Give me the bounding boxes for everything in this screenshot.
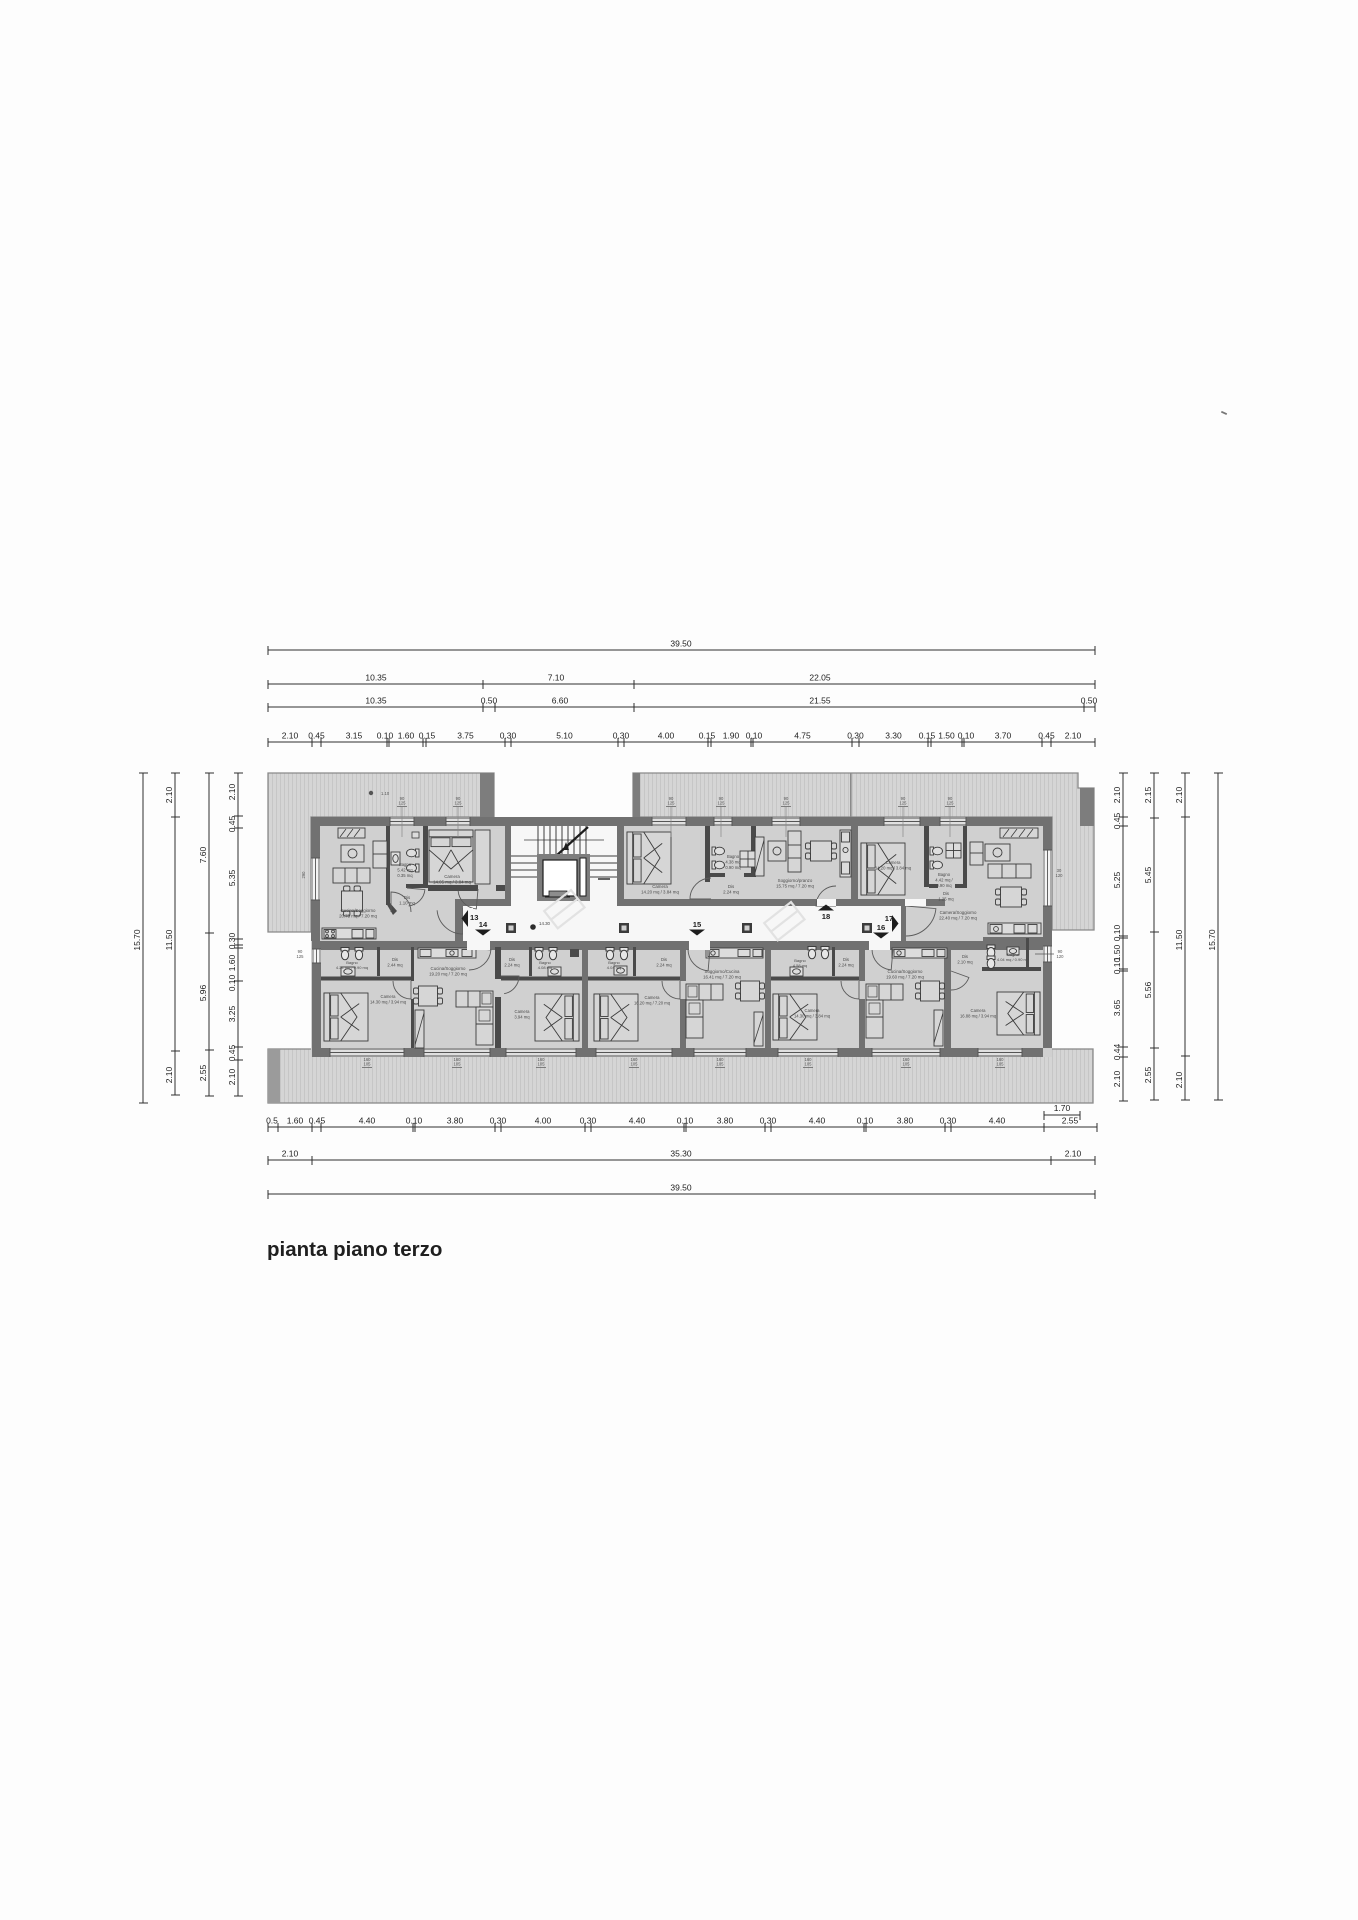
svg-text:0.30: 0.30 [760, 1116, 777, 1126]
svg-text:2.10: 2.10 [282, 1149, 299, 1159]
svg-text:2.15: 2.15 [1143, 786, 1153, 803]
svg-text:39.50: 39.50 [670, 639, 692, 649]
svg-text:0.10: 0.10 [958, 731, 975, 741]
svg-text:4.42 mq /: 4.42 mq / [935, 877, 953, 882]
svg-text:Dis: Dis [962, 954, 968, 959]
svg-text:15.75 mq / 7.20 mq: 15.75 mq / 7.20 mq [776, 884, 814, 889]
svg-text:16.88 mq / 3.94 mq: 16.88 mq / 3.94 mq [960, 1013, 997, 1018]
svg-text:125: 125 [668, 801, 676, 806]
svg-text:4.00: 4.00 [535, 1116, 552, 1126]
svg-text:4.40: 4.40 [989, 1116, 1006, 1126]
svg-text:1.60: 1.60 [398, 731, 415, 741]
svg-text:2.55: 2.55 [1062, 1116, 1079, 1126]
svg-text:105: 105 [717, 1062, 725, 1067]
svg-text:16.41 mq / 7.20 mq: 16.41 mq / 7.20 mq [703, 975, 741, 980]
svg-text:125: 125 [783, 801, 791, 806]
svg-text:3.70: 3.70 [995, 731, 1012, 741]
svg-text:2.10: 2.10 [227, 783, 237, 800]
svg-text:Cucina/Soggiorno: Cucina/Soggiorno [341, 908, 376, 913]
svg-text:35.30: 35.30 [670, 1149, 692, 1159]
svg-text:0.30: 0.30 [580, 1116, 597, 1126]
svg-text:4.04 mq: 4.04 mq [607, 965, 621, 970]
svg-text:1.90: 1.90 [723, 731, 740, 741]
svg-text:11.50: 11.50 [1174, 929, 1184, 950]
svg-text:Camera/Soggiorno: Camera/Soggiorno [940, 910, 977, 915]
svg-text:2.24 mq: 2.24 mq [504, 962, 520, 967]
svg-text:5.45: 5.45 [1143, 866, 1153, 883]
svg-text:Bagno: Bagno [938, 872, 951, 877]
svg-text:0.45: 0.45 [227, 1044, 237, 1061]
svg-text:1.25 mq: 1.25 mq [938, 896, 954, 901]
svg-text:2.10: 2.10 [1112, 786, 1122, 803]
svg-text:2.10: 2.10 [1174, 1071, 1184, 1088]
svg-text:10.35: 10.35 [365, 696, 387, 706]
svg-text:0.30: 0.30 [940, 1116, 957, 1126]
svg-text:0.45: 0.45 [309, 1116, 326, 1126]
svg-text:0.30: 0.30 [490, 1116, 507, 1126]
svg-text:Camera: Camera [971, 1008, 987, 1013]
svg-text:2.10: 2.10 [1112, 1070, 1122, 1087]
svg-text:14.20 mq / 3.84 mq: 14.20 mq / 3.84 mq [875, 865, 912, 870]
svg-text:125: 125 [455, 801, 463, 806]
svg-text:0.10: 0.10 [677, 1116, 694, 1126]
svg-text:0.10: 0.10 [746, 731, 763, 741]
svg-text:16.20 mq / 7.20 mq: 16.20 mq / 7.20 mq [634, 1000, 671, 1005]
svg-text:0.30: 0.30 [227, 932, 237, 949]
svg-text:18: 18 [822, 912, 830, 921]
svg-text:Camera: Camera [444, 874, 460, 879]
svg-text:290: 290 [301, 871, 306, 879]
svg-text:0.30: 0.30 [847, 731, 864, 741]
svg-text:14: 14 [479, 920, 488, 929]
svg-text:2.55: 2.55 [1143, 1066, 1153, 1083]
svg-text:15.70: 15.70 [1207, 929, 1217, 951]
svg-text:0.15: 0.15 [699, 731, 716, 741]
svg-text:14.05 mq / 3.84 mq: 14.05 mq / 3.84 mq [433, 880, 471, 885]
svg-text:7.60: 7.60 [198, 846, 208, 863]
svg-text:3.75: 3.75 [457, 731, 474, 741]
svg-text:15.70: 15.70 [132, 929, 142, 951]
svg-text:0.35 mq: 0.35 mq [397, 873, 413, 878]
svg-text:3.30: 3.30 [885, 731, 902, 741]
svg-text:0.10: 0.10 [857, 1116, 874, 1126]
svg-text:5.56: 5.56 [1143, 981, 1153, 998]
svg-text:5.35: 5.35 [227, 869, 237, 886]
svg-text:22.05: 22.05 [809, 673, 831, 683]
svg-text:105: 105 [631, 1062, 639, 1067]
svg-text:Dis: Dis [509, 957, 515, 962]
svg-text:6.60: 6.60 [552, 696, 569, 706]
svg-text:120: 120 [1057, 954, 1065, 959]
svg-text:125: 125 [900, 801, 908, 806]
svg-text:pianta piano terzo: pianta piano terzo [267, 1238, 442, 1261]
svg-text:5.42 mq: 5.42 mq [397, 867, 413, 872]
svg-text:0.90 mq: 0.90 mq [936, 883, 952, 888]
svg-text:3.25: 3.25 [227, 1005, 237, 1022]
svg-text:1.60: 1.60 [287, 1116, 304, 1126]
svg-text:Bagno: Bagno [727, 854, 740, 859]
svg-text:0.10: 0.10 [377, 731, 394, 741]
svg-text:0.15: 0.15 [919, 731, 936, 741]
svg-text:Bagno: Bagno [399, 862, 412, 867]
svg-text:4.40: 4.40 [359, 1116, 376, 1126]
svg-text:0.5: 0.5 [266, 1116, 278, 1126]
svg-text:3.15: 3.15 [346, 731, 363, 741]
svg-text:2.24 mq: 2.24 mq [656, 962, 672, 967]
svg-text:14.30 mq / 3.94 mq: 14.30 mq / 3.94 mq [370, 999, 407, 1004]
svg-text:Cucina/Soggiorno: Cucina/Soggiorno [888, 969, 923, 974]
svg-text:4.75: 4.75 [794, 731, 811, 741]
svg-text:105: 105 [903, 1062, 911, 1067]
svg-text:20.75 mq / 7.20 mq: 20.75 mq / 7.20 mq [339, 914, 377, 919]
svg-text:3.80: 3.80 [447, 1116, 464, 1126]
svg-text:1.50: 1.50 [938, 731, 955, 741]
svg-text:2.24 mq: 2.24 mq [723, 890, 739, 895]
svg-text:0.10: 0.10 [1112, 924, 1122, 941]
svg-text:5.25: 5.25 [1112, 871, 1122, 888]
svg-text:4.24 mq / 0.90 mq: 4.24 mq / 0.90 mq [336, 965, 368, 970]
svg-text:105: 105 [364, 1062, 372, 1067]
svg-text:0.50: 0.50 [1081, 696, 1098, 706]
svg-text:105: 105 [805, 1062, 813, 1067]
svg-text:125: 125 [399, 801, 407, 806]
svg-text:7.10: 7.10 [548, 673, 565, 683]
svg-text:Camera: Camera [645, 995, 661, 1000]
svg-text:4.38 mq: 4.38 mq [725, 859, 741, 864]
svg-text:10.35: 10.35 [365, 673, 387, 683]
svg-text:Dis: Dis [661, 957, 667, 962]
svg-text:0.50: 0.50 [481, 696, 498, 706]
svg-text:0.10: 0.10 [1112, 957, 1122, 974]
svg-text:19.20 mq / 7.20 mq: 19.20 mq / 7.20 mq [429, 972, 467, 977]
svg-text:39.50: 39.50 [670, 1183, 692, 1193]
svg-text:Dis: Dis [843, 957, 849, 962]
svg-text:105: 105 [997, 1062, 1005, 1067]
svg-text:105: 105 [454, 1062, 462, 1067]
svg-text:Camera: Camera [381, 994, 397, 999]
svg-text:3.80: 3.80 [717, 1116, 734, 1126]
svg-text:Cucina/Soggiorno: Cucina/Soggiorno [431, 966, 466, 971]
svg-text:14.30: 14.30 [539, 921, 551, 926]
svg-text:2.24 mq: 2.24 mq [838, 962, 854, 967]
svg-text:3.80: 3.80 [897, 1116, 914, 1126]
svg-text:2.10 mq: 2.10 mq [957, 959, 973, 964]
svg-text:0.30: 0.30 [613, 731, 630, 741]
svg-text:3.65: 3.65 [1112, 999, 1122, 1016]
svg-text:2.55: 2.55 [198, 1064, 208, 1081]
svg-text:22.40 mq / 7.20 mq: 22.40 mq / 7.20 mq [939, 916, 977, 921]
svg-text:Soggiorno/pranzo: Soggiorno/pranzo [778, 878, 813, 883]
svg-text:4.58 mq: 4.58 mq [793, 963, 807, 968]
svg-text:0.45: 0.45 [1112, 812, 1122, 829]
svg-text:Camera: Camera [652, 884, 668, 889]
svg-text:2.10: 2.10 [1065, 1149, 1082, 1159]
svg-text:3.94 mq: 3.94 mq [514, 1014, 530, 1019]
svg-text:1.70: 1.70 [1054, 1103, 1071, 1113]
svg-text:1.10: 1.10 [381, 791, 390, 796]
svg-text:0.10: 0.10 [227, 974, 237, 991]
svg-text:0.45: 0.45 [308, 731, 325, 741]
svg-text:2.10: 2.10 [164, 1066, 174, 1083]
svg-text:16: 16 [877, 923, 885, 932]
svg-text:21.55: 21.55 [809, 696, 831, 706]
svg-text:Dis: Dis [728, 884, 735, 889]
svg-text:5.10: 5.10 [556, 731, 573, 741]
svg-text:4.00: 4.00 [658, 731, 675, 741]
svg-text:125: 125 [947, 801, 955, 806]
svg-text:0.44: 0.44 [1112, 1043, 1122, 1060]
svg-text:Camera: Camera [515, 1009, 531, 1014]
svg-text:4.40: 4.40 [629, 1116, 646, 1126]
svg-text:17: 17 [885, 914, 893, 923]
svg-text:4.04 mq / 0.90 mq: 4.04 mq / 0.90 mq [997, 957, 1029, 962]
svg-text:125: 125 [297, 954, 305, 959]
svg-text:1.60: 1.60 [227, 954, 237, 971]
svg-text:2.10: 2.10 [227, 1068, 237, 1085]
svg-text:14.30 mq / 3.84 mq: 14.30 mq / 3.84 mq [794, 1013, 831, 1018]
svg-text:5.96: 5.96 [198, 984, 208, 1001]
svg-text:2.10: 2.10 [282, 731, 299, 741]
svg-text:4.08 mq: 4.08 mq [538, 965, 552, 970]
svg-text:0.30: 0.30 [500, 731, 517, 741]
svg-text:120: 120 [1056, 873, 1064, 878]
svg-text:2.44 mq: 2.44 mq [387, 962, 403, 967]
svg-text:125: 125 [718, 801, 726, 806]
svg-text:13: 13 [470, 913, 478, 922]
svg-text:Camera: Camera [886, 860, 902, 865]
svg-text:2.10: 2.10 [1174, 786, 1184, 803]
svg-text:0.10: 0.10 [406, 1116, 423, 1126]
svg-text:19.60 mq / 7.20 mq: 19.60 mq / 7.20 mq [886, 975, 924, 980]
svg-text:11.50: 11.50 [164, 929, 174, 950]
svg-text:14.20 mq / 3.84 mq: 14.20 mq / 3.84 mq [641, 890, 679, 895]
svg-text:Dis: Dis [392, 957, 398, 962]
svg-text:4.40: 4.40 [809, 1116, 826, 1126]
svg-text:0.45: 0.45 [1038, 731, 1055, 741]
svg-text:0.45: 0.45 [227, 815, 237, 832]
svg-text:Camera: Camera [805, 1008, 821, 1013]
svg-text:0.15: 0.15 [419, 731, 436, 741]
svg-text:2.10: 2.10 [164, 786, 174, 803]
svg-text:2.10: 2.10 [1065, 731, 1082, 741]
svg-text:Dis: Dis [943, 891, 949, 896]
svg-text:0.90 mq: 0.90 mq [725, 865, 741, 870]
svg-text:105: 105 [538, 1062, 546, 1067]
svg-text:15: 15 [693, 920, 702, 929]
svg-text:Soggiorno/Cucina: Soggiorno/Cucina [705, 969, 740, 974]
